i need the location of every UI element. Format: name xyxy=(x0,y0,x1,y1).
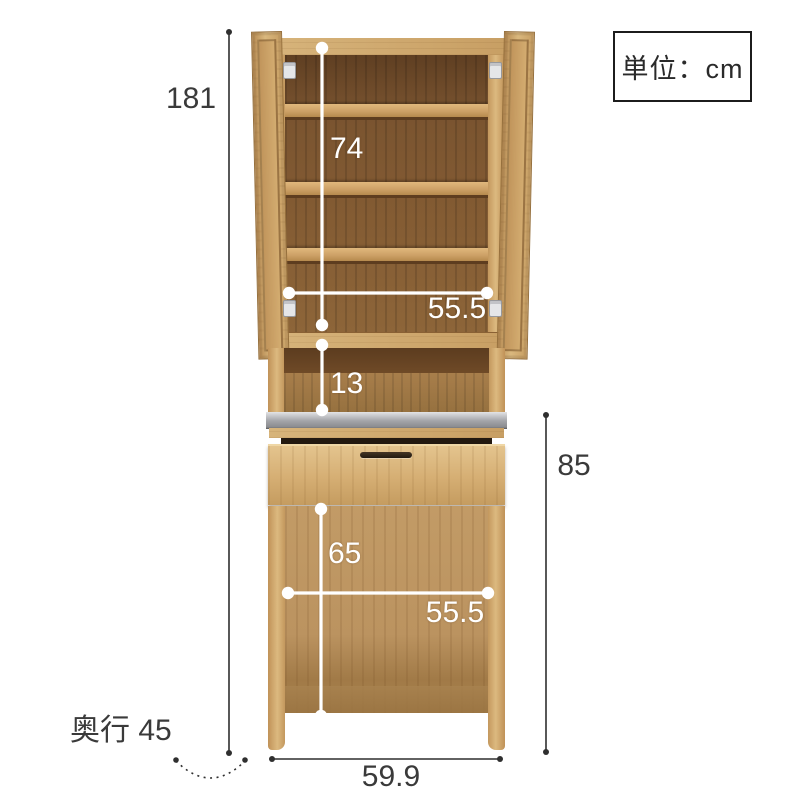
lower-right-side-panel xyxy=(488,506,505,750)
drawer-handle xyxy=(360,452,412,458)
under-counter-rail xyxy=(269,428,504,438)
label-niche-height: 13 xyxy=(330,369,363,399)
hutch-left-door-panel xyxy=(257,39,283,351)
lower-left-side-panel xyxy=(268,506,285,750)
dimension-diagram: 181 74 55.5 13 85 65 55.5 59.9 奥行 45 単位：… xyxy=(0,0,800,800)
label-upper-interior-width: 55.5 xyxy=(422,294,492,324)
unit-box: 単位：cm xyxy=(613,31,752,102)
hutch-shelf xyxy=(285,248,488,264)
lower-bottom-rail xyxy=(285,686,488,713)
countertop xyxy=(266,412,507,429)
hutch-right-door-open xyxy=(497,31,535,360)
label-overall-width: 59.9 xyxy=(351,762,431,792)
hinge-icon xyxy=(489,62,502,79)
label-overall-height: 181 xyxy=(151,84,231,114)
hutch-shelf xyxy=(285,104,488,120)
niche-left-side xyxy=(268,348,284,413)
label-lower-interior-width: 55.5 xyxy=(420,598,490,628)
label-upper-interior-height: 74 xyxy=(330,134,363,164)
dim-line-overall-height xyxy=(226,29,232,756)
hinge-icon xyxy=(283,300,296,317)
niche-back xyxy=(284,373,489,413)
label-lower-interior-height: 65 xyxy=(328,539,361,569)
depth-arc xyxy=(173,757,248,778)
label-lower-section-height: 85 xyxy=(534,451,614,481)
label-depth: 奥行 45 xyxy=(70,716,172,746)
hutch-shelf xyxy=(285,182,488,198)
leg-gap xyxy=(285,713,488,758)
unit-box-label: 単位：cm xyxy=(622,47,744,86)
hutch-right-door-panel xyxy=(503,39,529,351)
hinge-icon xyxy=(283,62,296,79)
niche-back-top-band xyxy=(284,348,489,373)
niche-right-side xyxy=(489,348,505,413)
